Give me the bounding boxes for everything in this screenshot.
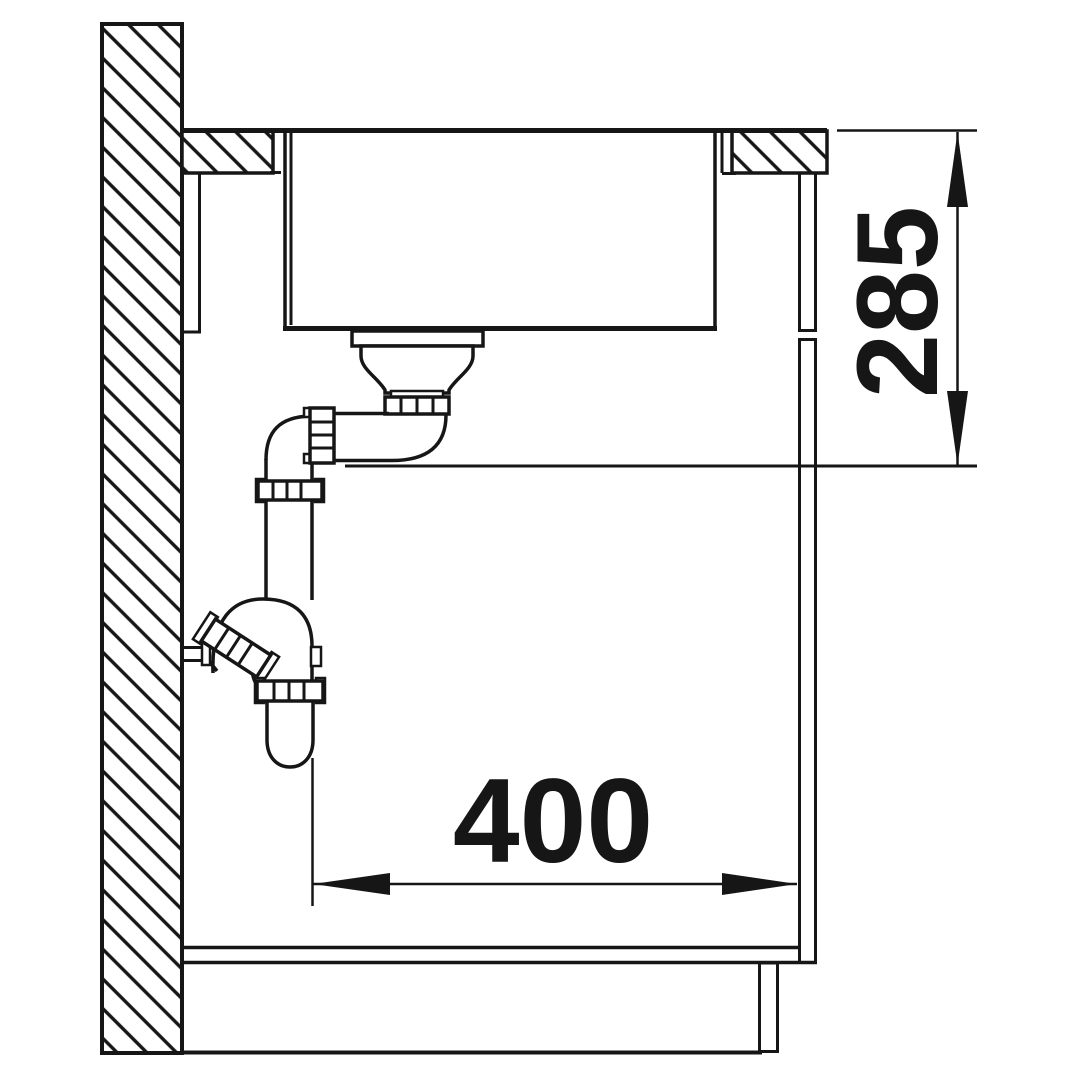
technical-drawing-canvas: 285 400: [0, 0, 1080, 1080]
worktop-right: [732, 131, 827, 173]
cabinet-plinth: [760, 963, 778, 1052]
union-nut: [258, 481, 322, 500]
pipe-clamp: [311, 647, 321, 666]
trap-cup: [267, 700, 313, 767]
worktop-left: [182, 131, 273, 173]
sink-cross-section-drawing: 285 400: [0, 0, 1080, 1080]
dimension-vertical-value: 285: [834, 206, 962, 398]
strainer-flange: [352, 331, 483, 346]
dimension-horizontal-value: 400: [453, 754, 653, 888]
wall-section: [102, 24, 182, 1053]
